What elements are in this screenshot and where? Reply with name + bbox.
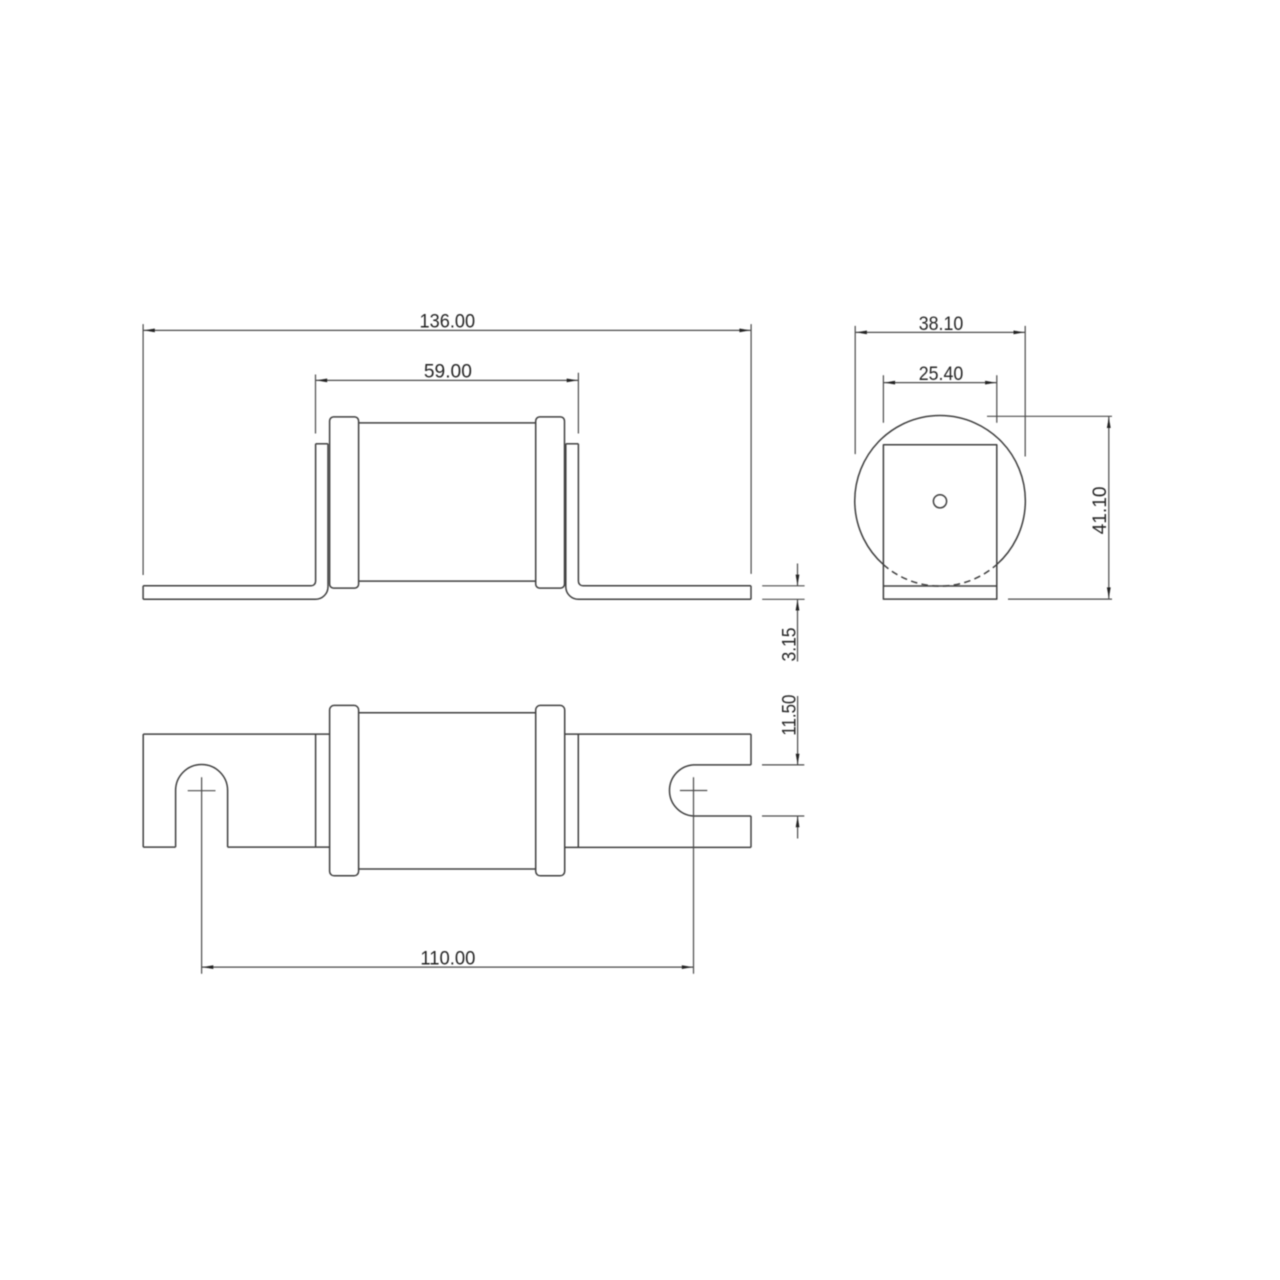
svg-text:110.00: 110.00 <box>420 949 475 970</box>
svg-text:38.10: 38.10 <box>919 314 964 335</box>
svg-text:136.00: 136.00 <box>420 312 476 333</box>
svg-text:59.00: 59.00 <box>424 362 472 383</box>
svg-text:25.40: 25.40 <box>919 364 964 385</box>
svg-text:11.50: 11.50 <box>780 695 801 736</box>
svg-text:3.15: 3.15 <box>779 628 800 662</box>
svg-text:41.10: 41.10 <box>1090 486 1111 534</box>
